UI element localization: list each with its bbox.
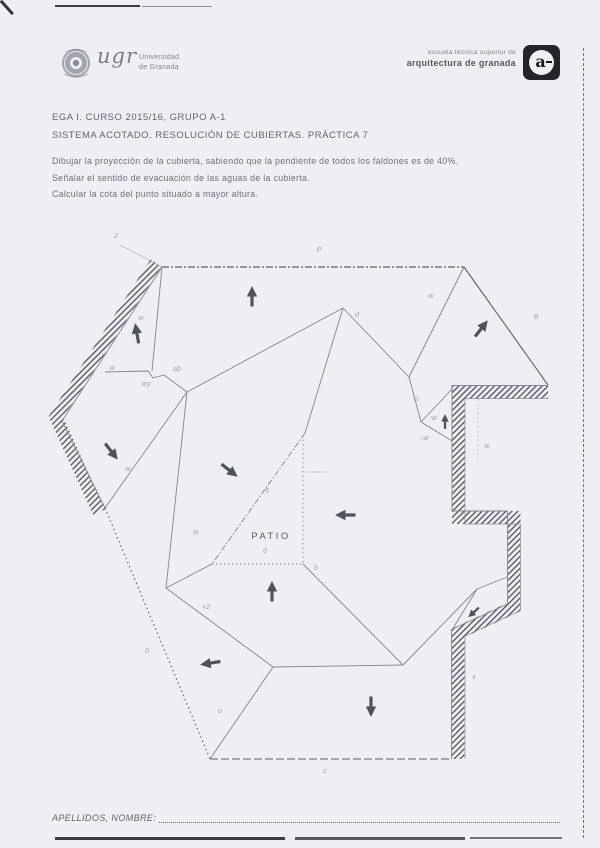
pencil-annotation: o	[218, 706, 222, 715]
roof-hip-line	[409, 267, 464, 377]
roof-valley-line	[421, 388, 453, 422]
pencil-annotation: w	[431, 413, 437, 422]
roof-hip-line	[152, 267, 162, 371]
scan-artifact-bottom-edge	[295, 837, 465, 840]
scan-artifact-top-line	[55, 5, 140, 7]
ugr-wordmark: ugr	[97, 44, 137, 68]
name-field-row: APELLIDOS, NOMBRE:	[52, 812, 560, 823]
pencil-annotation: w	[138, 313, 144, 322]
pencil-annotation: 0	[145, 646, 150, 655]
pencil-annotation: 6	[263, 546, 268, 555]
water-flow-arrow	[267, 581, 277, 602]
pencil-annotation: w	[428, 291, 434, 300]
construction-line	[120, 245, 162, 267]
water-flow-arrow	[101, 440, 122, 463]
instruction-line: Dibujar la proyección de la cubierta, sa…	[52, 153, 458, 170]
school-name: escuela técnica superior de arquitectura…	[407, 49, 516, 68]
university-name: Universidad de Granada	[139, 53, 179, 73]
roof-ridge-line	[477, 577, 507, 589]
roof-valley-line	[166, 588, 273, 667]
pencil-annotation: w	[125, 464, 131, 473]
ugr-crest-icon	[58, 44, 94, 84]
roof-valley-line	[105, 371, 164, 378]
roof-valley-line	[166, 564, 212, 588]
scan-artifact-right-edge	[583, 48, 584, 838]
scan-artifact-bottom-edge	[470, 837, 562, 839]
pencil-annotation: ½	[413, 394, 420, 403]
water-flow-arrow	[218, 460, 241, 481]
pencil-annotation: c	[323, 766, 327, 775]
instruction-line: Señalar el sentido de evacuación de las …	[52, 170, 458, 187]
pencil-annotation: d	[355, 310, 360, 319]
pencil-annotation: P	[316, 245, 321, 254]
pencil-annotation: wy	[141, 379, 151, 388]
roof-valley-line	[164, 375, 187, 392]
water-flow-arrow	[130, 322, 144, 344]
scan-artifact-top-line-2	[142, 6, 212, 7]
pencil-annotation: w	[484, 441, 490, 450]
pencil-annotation: B	[533, 312, 538, 321]
roof-valley-line	[303, 564, 403, 665]
wall-inner-edge	[452, 386, 549, 760]
patio-edge	[212, 433, 305, 564]
roof-eave-edge	[464, 267, 548, 385]
eave-line-left	[105, 508, 210, 759]
roof-plan-svg: 2PdwBwwwyabwR56h+20oc½w↓wwxPATIO	[0, 0, 600, 848]
roof-ridge-line	[187, 308, 343, 392]
etsa-logo: a	[523, 45, 560, 80]
roof-ridge-line	[166, 392, 187, 588]
water-flow-arrow	[471, 317, 492, 340]
etsa-logo-tail	[546, 61, 552, 63]
name-fill-dotted-line	[159, 812, 560, 823]
wall-outer-edge	[465, 399, 548, 760]
scan-artifact-bottom-edge	[55, 837, 285, 840]
scanned-sheet: 2PdwBwwwyabwR56h+20oc½w↓wwxPATIO ugr Uni…	[0, 0, 600, 848]
instruction-line: Calcular la cota del punto situado a may…	[52, 186, 458, 203]
roof-ridge-line	[343, 308, 409, 377]
water-flow-arrow	[366, 697, 376, 718]
pencil-annotation: w	[109, 363, 115, 372]
water-flow-arrow	[247, 286, 257, 307]
roof-hip-line	[105, 392, 187, 508]
water-flow-arrow	[335, 510, 356, 520]
pencil-annotation: +2	[202, 602, 211, 611]
name-field-label: APELLIDOS, NOMBRE:	[52, 813, 156, 823]
pencil-annotation: x	[471, 672, 476, 681]
exercise-instructions: Dibujar la proyección de la cubierta, sa…	[52, 153, 458, 203]
right-exterior-wall	[458, 392, 548, 759]
water-flow-arrow	[199, 656, 221, 669]
etsa-logo-circle: a	[529, 50, 554, 75]
pencil-annotation: 5	[265, 486, 270, 495]
water-flow-arrow	[441, 414, 448, 429]
roof-hip-line	[305, 308, 343, 433]
pencil-annotation: 2	[113, 231, 119, 240]
course-line: EGA I. CURSO 2015/16, GRUPO A-1	[52, 112, 226, 123]
pencil-annotation: R	[193, 528, 199, 537]
page-title: SISTEMA ACOTADO. RESOLUCIÓN DE CUBIERTAS…	[52, 130, 368, 141]
pencil-annotation: ↓w	[419, 433, 429, 442]
patio-label: PATIO	[251, 531, 291, 542]
pencil-annotation: h	[314, 563, 318, 572]
roof-ridge-line	[273, 665, 403, 667]
roof-plan: 2PdwBwwwyabwR56h+20oc½w↓wwxPATIO	[56, 231, 548, 775]
pencil-annotation: ab	[173, 364, 181, 373]
